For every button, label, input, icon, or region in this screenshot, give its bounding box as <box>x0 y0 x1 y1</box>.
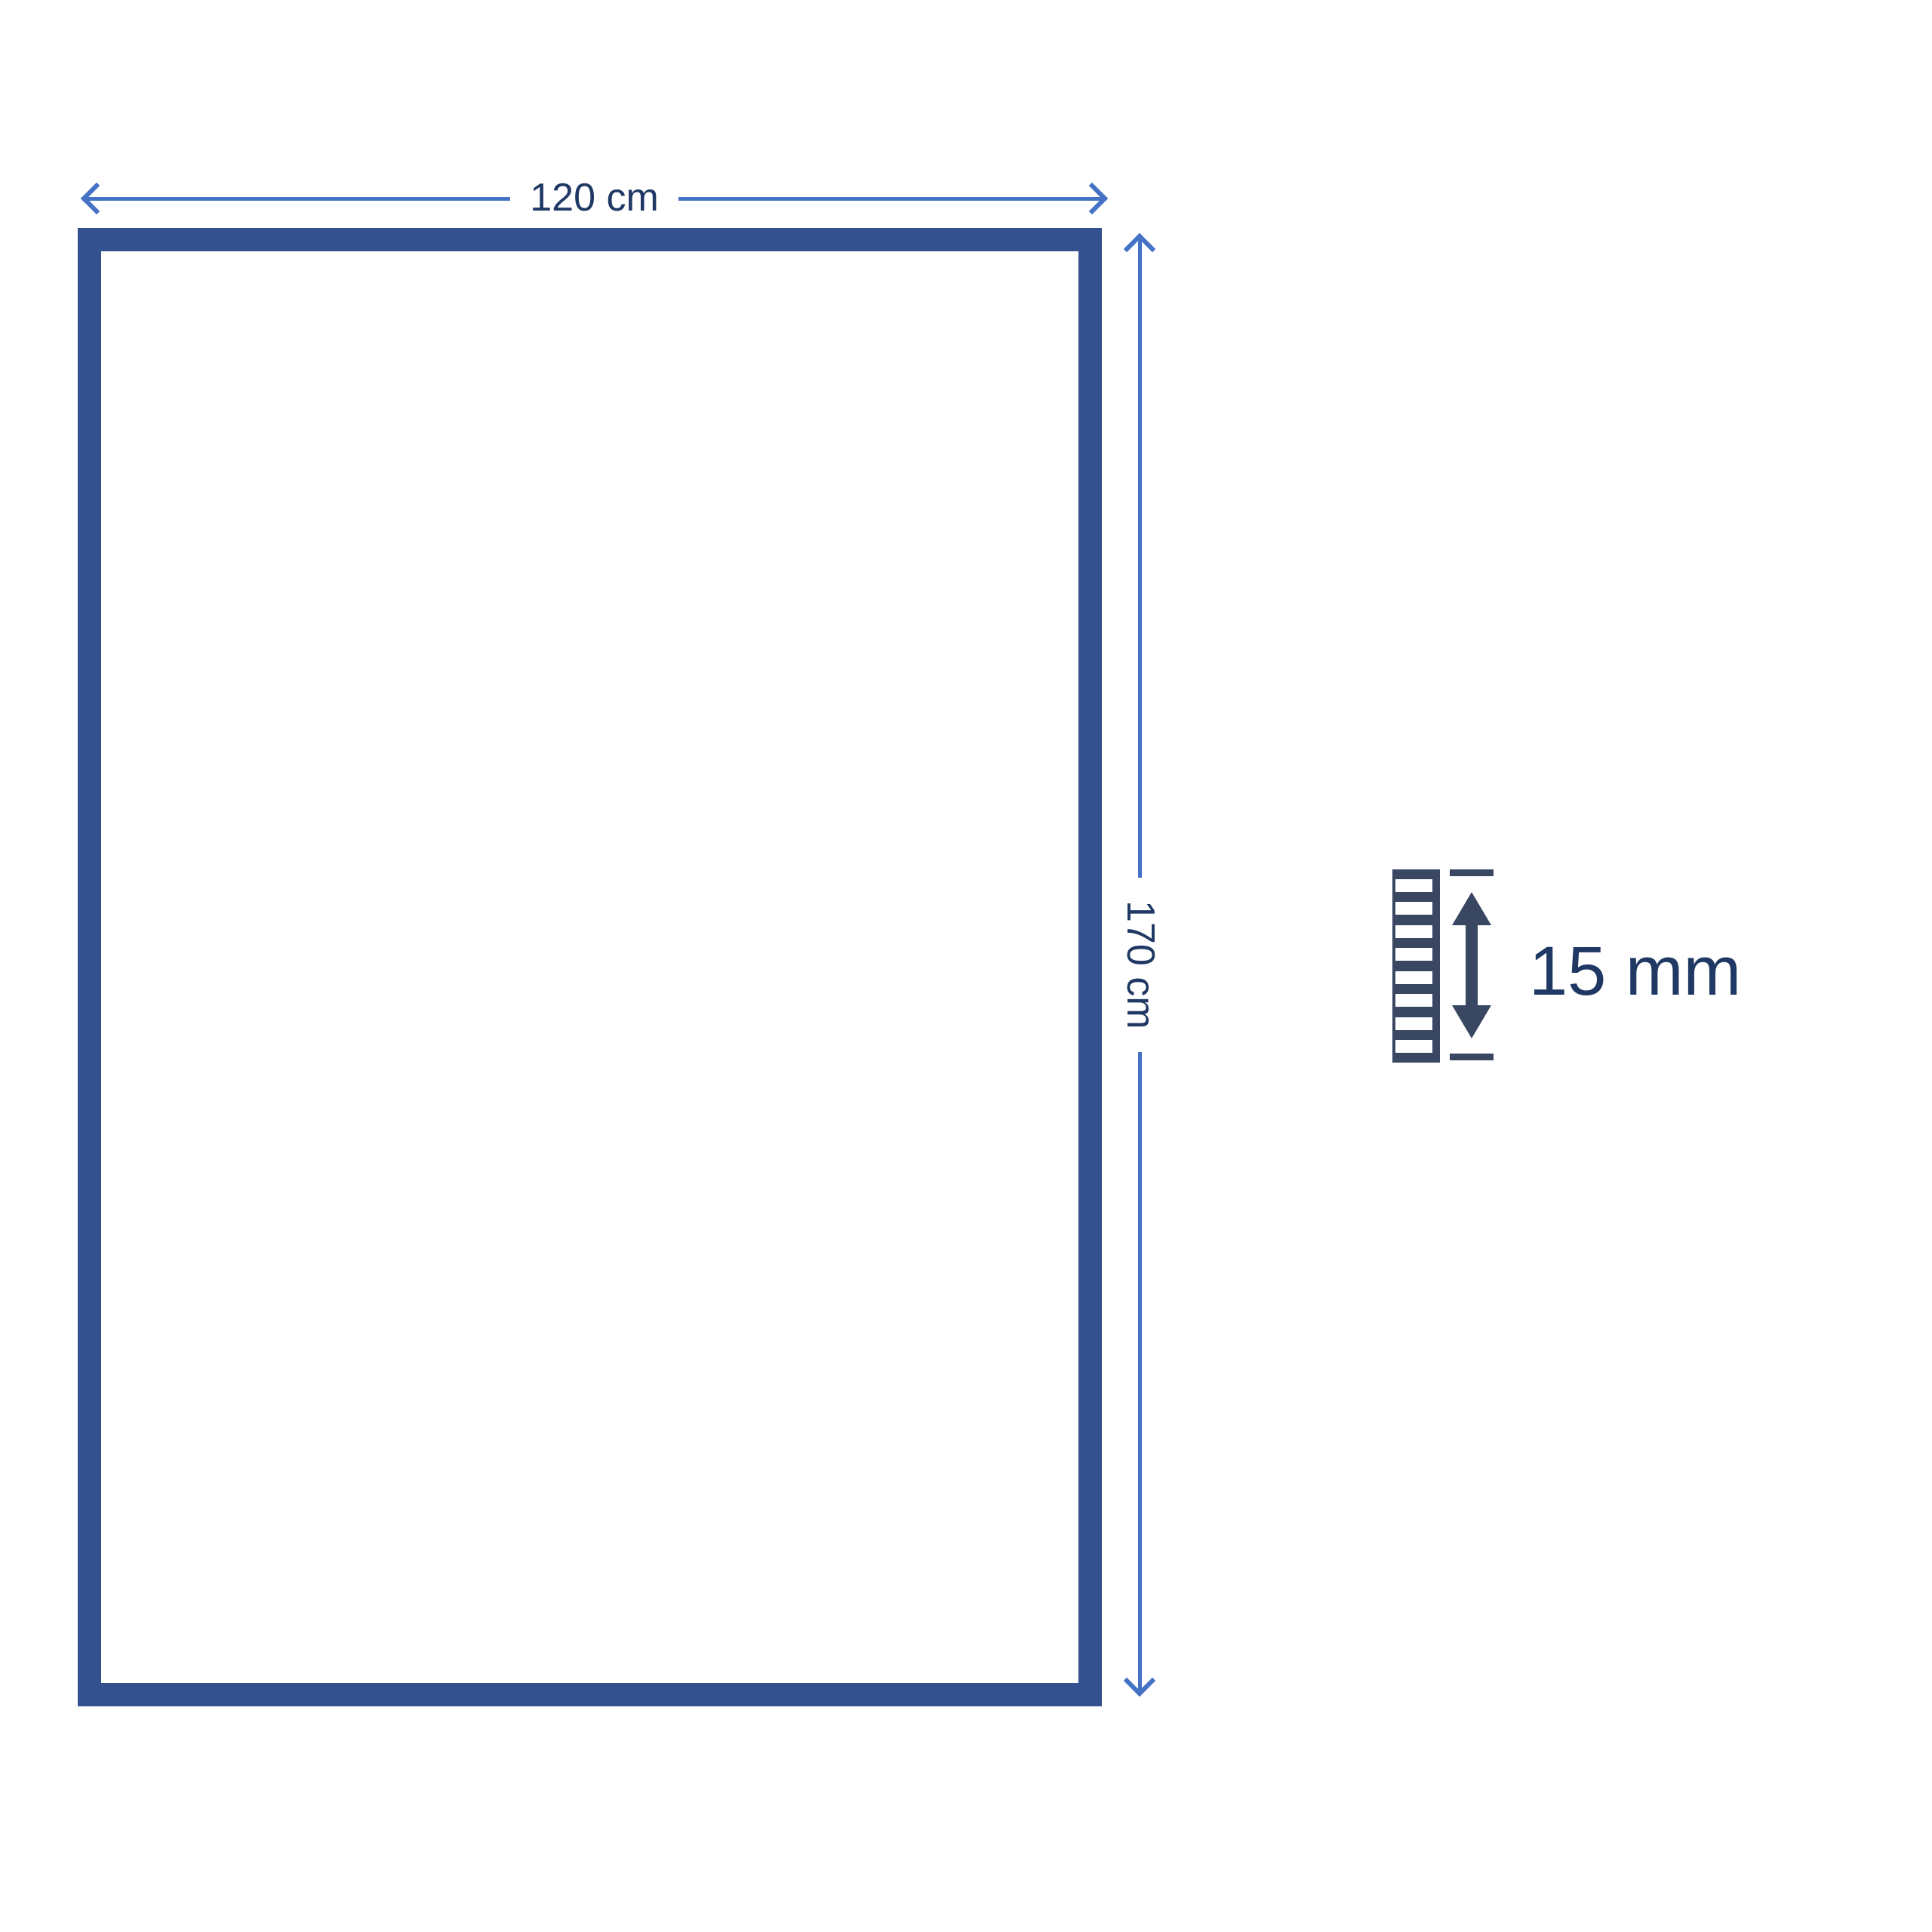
width-arrow-right-icon <box>678 197 1102 201</box>
height-label: 170 cm <box>1117 878 1162 1052</box>
pile-layer-slot <box>1395 925 1432 938</box>
height-arrow-up-icon <box>1138 239 1142 878</box>
pile-layer-slot <box>1395 902 1432 915</box>
gauge-arrow-down-icon <box>1452 1005 1491 1038</box>
height-dimension: 170 cm <box>1117 239 1162 1690</box>
thickness-gauge-icon <box>1450 869 1494 1060</box>
gauge-bottom-tick <box>1450 1054 1494 1060</box>
product-outline-rectangle <box>78 228 1102 1706</box>
pile-layer-slot <box>1395 879 1432 892</box>
width-arrow-left-icon <box>87 197 510 201</box>
height-arrow-down-icon <box>1138 1052 1142 1690</box>
gauge-arrow-shaft <box>1466 924 1478 1007</box>
gauge-top-tick <box>1450 869 1494 876</box>
pile-layer-slot <box>1395 1017 1432 1030</box>
width-dimension: 120 cm <box>87 177 1102 220</box>
width-label: 120 cm <box>510 176 678 221</box>
gauge-arrow-up-icon <box>1452 892 1491 925</box>
pile-layer-slot <box>1395 994 1432 1007</box>
thickness-label: 15 mm <box>1529 937 1741 1006</box>
pile-layer-slot <box>1395 948 1432 961</box>
pile-layer-slot <box>1395 971 1432 984</box>
dimension-diagram: 120 cm 170 cm 15 mm <box>0 0 1932 1932</box>
pile-layer-slot <box>1395 1040 1432 1053</box>
pile-layers-icon <box>1392 869 1440 1063</box>
